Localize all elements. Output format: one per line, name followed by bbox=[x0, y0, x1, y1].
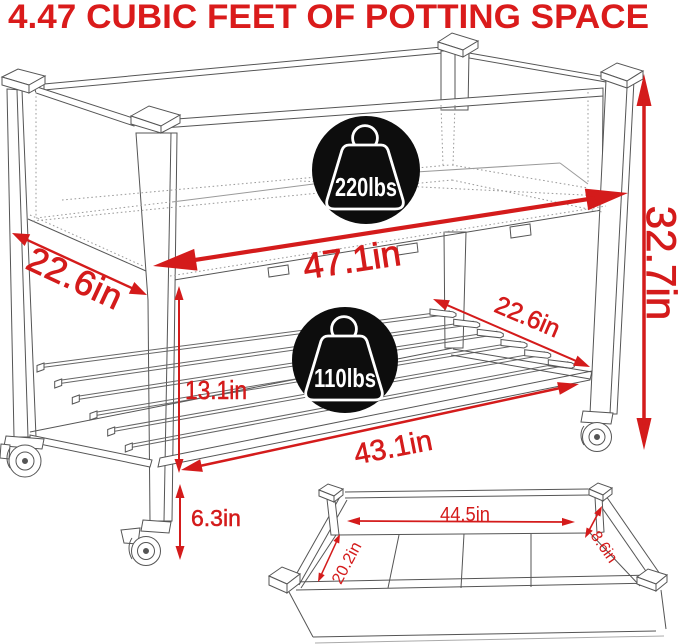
svg-text:13.1in: 13.1in bbox=[185, 375, 247, 405]
svg-text:110lbs: 110lbs bbox=[314, 363, 376, 393]
svg-text:32.7in: 32.7in bbox=[638, 206, 679, 320]
svg-text:4.47 CUBIC FEET OF POTTING SPA: 4.47 CUBIC FEET OF POTTING SPACE bbox=[8, 0, 649, 36]
svg-text:44.5in: 44.5in bbox=[440, 504, 490, 526]
svg-text:220lbs: 220lbs bbox=[335, 172, 397, 202]
svg-text:6.3in: 6.3in bbox=[191, 505, 241, 531]
